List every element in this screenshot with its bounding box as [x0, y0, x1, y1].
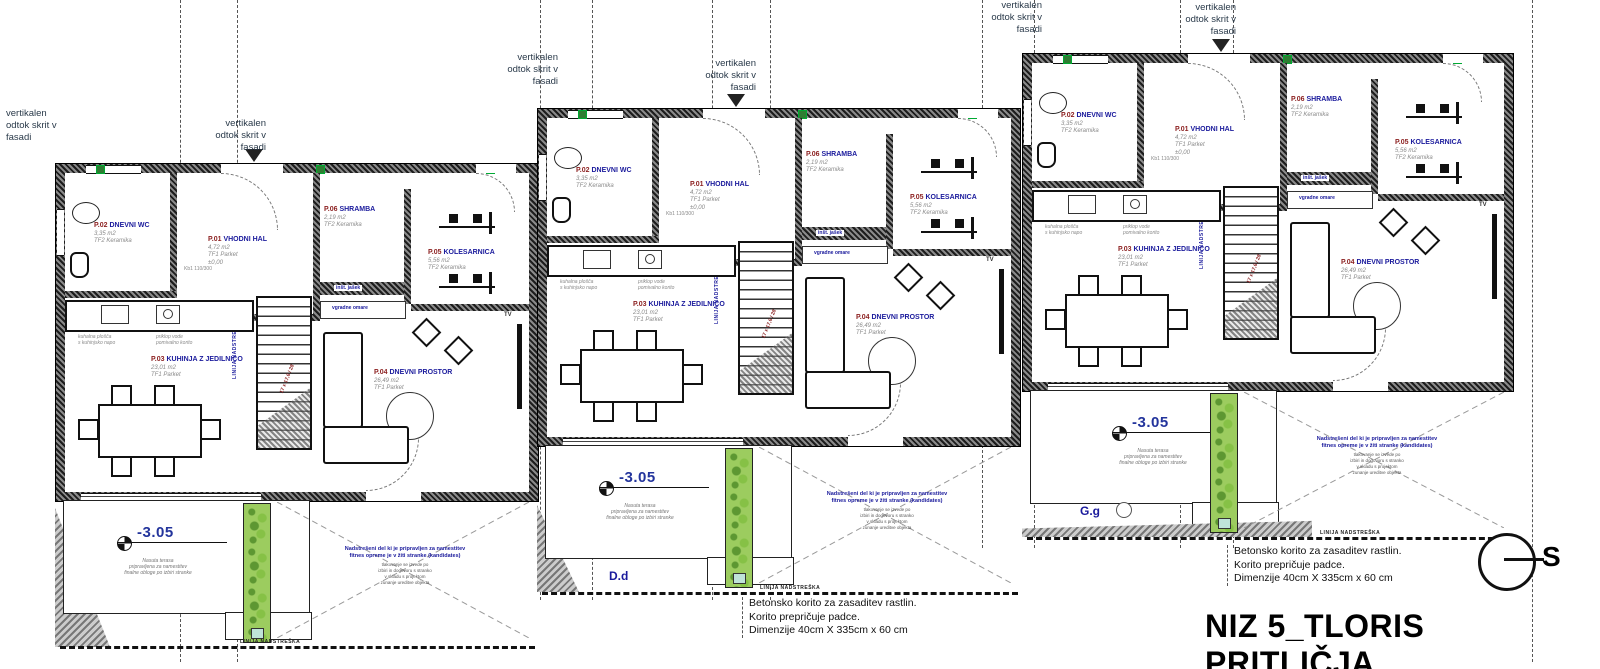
- level-marker-icon: [599, 481, 614, 496]
- room-label-kitchen: P.03 KUHINJA Z JEDILNICO 23,01 m2 TF1 Pa…: [151, 356, 243, 380]
- dining-table: [98, 404, 202, 458]
- terrace-b: -3.05 Nasuta terasa pripravljena za name…: [537, 445, 1019, 592]
- room-label-wc: P.02 DNEVNI WC 3,35 m2 TF2 Keramika: [1061, 112, 1117, 136]
- sink-note: priklop vode pomivalno korito: [156, 334, 192, 346]
- chair: [78, 419, 99, 440]
- window: [568, 110, 623, 119]
- planter-note: Betonsko korito za zasaditev rastlin. Ko…: [742, 597, 1019, 638]
- entry-door: [703, 109, 765, 118]
- staircase: 17 x 17,6 / 28: [256, 296, 312, 450]
- wardrobe-label: vgradne omare: [332, 305, 368, 311]
- unit-b: P.02 DNEVNI WC 3,35 m2 TF2 Keramika P.01…: [537, 108, 1021, 447]
- canopy-edge-line: [60, 646, 535, 649]
- drain-note: vertikalen odtok skrit v fasadi: [972, 0, 1042, 36]
- tv-icon: [1492, 214, 1497, 299]
- unit-c: P.02 DNEVNI WC 3,35 m2 TF2 Keramika P.01…: [1022, 53, 1514, 392]
- entry-arrow-icon: [1212, 39, 1230, 52]
- room-label-kitchen: P.03 KUHINJA Z JEDILNICO 23,01 m2 TF1 Pa…: [1118, 246, 1210, 270]
- level-marker-icon: [1112, 426, 1127, 441]
- planter: [1210, 393, 1238, 533]
- room-label-hall: P.01 VHODNI HAL 4,72 m2 TF1 Parket ±0,00: [208, 236, 267, 267]
- wall: [313, 173, 320, 321]
- dining-table: [1065, 294, 1169, 348]
- drain-note: vertikalen odtok skrit v fasadi: [6, 108, 76, 144]
- drain-note: vertikalen odtok skrit v fasadi: [196, 118, 266, 154]
- drain-note: vertikalen odtok skrit v fasadi: [686, 58, 756, 94]
- north-label: S: [1542, 541, 1561, 573]
- room-label-hall: P.01 VHODNI HAL 4,72 m2 TF1 Parket ±0,00: [690, 181, 749, 212]
- room-label-living: P.04 DNEVNI PROSTOR 26,49 m2 TF1 Parket: [856, 314, 934, 338]
- hob-note: kuhalna plošča s kuhinjsko napo: [78, 334, 115, 346]
- entry-door: [221, 164, 283, 173]
- room-label-wc: P.02 DNEVNI WC 3,35 m2 TF2 Keramika: [94, 222, 150, 246]
- section-label-g: G.g: [1080, 504, 1100, 518]
- entry-door: [1188, 54, 1250, 63]
- vent-icon: [96, 165, 105, 174]
- planter: [725, 448, 753, 588]
- door: [1443, 54, 1483, 63]
- window: [86, 165, 141, 174]
- chair: [154, 456, 175, 477]
- room-label-wc: P.02 DNEVNI WC 3,35 m2 TF2 Keramika: [576, 167, 632, 191]
- window: [1053, 55, 1108, 64]
- unit-a: P.02 DNEVNI WC 3,35 m2 TF2 Keramika P.01…: [55, 163, 539, 502]
- north-icon: [1478, 533, 1536, 591]
- drawing-title: NIZ 5_TLORIS PRITLIČJA: [1205, 608, 1600, 669]
- tv-icon: [999, 269, 1004, 354]
- stove-icon: [1068, 195, 1096, 214]
- room-label-hall: P.01 VHODNI HAL 4,72 m2 TF1 Parket ±0,00: [1175, 126, 1234, 157]
- entry-arrow-icon: [727, 94, 745, 107]
- tv-label: TV: [504, 312, 512, 318]
- bike-icon: [921, 157, 979, 179]
- room-label-living: P.04 DNEVNI PROSTOR 26,49 m2 TF1 Parket: [374, 369, 452, 393]
- vent-icon: [578, 110, 587, 119]
- stair-note: 17 x 17,6 / 28: [279, 364, 296, 395]
- canopy-edge-line: [542, 592, 1018, 595]
- room-label-living: P.04 DNEVNI PROSTOR 26,49 m2 TF1 Parket: [1341, 259, 1419, 283]
- toilet-icon: [552, 197, 571, 223]
- chair: [111, 456, 132, 477]
- room-label-shramba: P.06 SHRAMBA 2,19 m2 TF2 Keramika: [806, 151, 857, 175]
- planter-note: Betonsko korito za zasaditev rastlin. Ko…: [1227, 545, 1464, 586]
- canopy-edge-line: [1027, 537, 1512, 540]
- room-label-kolesarnica: P.05 KOLESARNICA 5,56 m2 TF2 Keramika: [910, 194, 977, 218]
- north-icon-line: [1504, 558, 1544, 561]
- toilet-icon: [70, 252, 89, 278]
- wall: [411, 304, 529, 311]
- chair: [154, 385, 175, 406]
- bike-icon: [439, 212, 497, 234]
- chair: [111, 385, 132, 406]
- level-marker-icon: [117, 536, 132, 551]
- shaft-label: inšt. jašek: [334, 285, 362, 291]
- drain-note: vertikalen odtok skrit v fasadi: [1166, 2, 1236, 38]
- room-label-kolesarnica: P.05 KOLESARNICA 5,56 m2 TF2 Keramika: [1395, 139, 1462, 163]
- toilet-icon: [1037, 142, 1056, 168]
- bike-icon: [439, 272, 497, 294]
- window-mark: Kb1 110/300: [184, 266, 212, 272]
- floor-plan-page: P.02 DNEVNI WC 3,35 m2 TF2 Keramika P.01…: [0, 0, 1600, 669]
- stove-icon: [583, 250, 611, 269]
- wall: [404, 189, 411, 304]
- chair: [200, 419, 221, 440]
- bike-icon: [1406, 102, 1464, 124]
- vent-icon: [1063, 55, 1072, 64]
- bike-icon: [921, 217, 979, 239]
- room-label-shramba: P.06 SHRAMBA 2,19 m2 TF2 Keramika: [1291, 96, 1342, 120]
- wall: [65, 291, 177, 298]
- tv-icon: [517, 324, 522, 409]
- bike-icon: [1406, 162, 1464, 184]
- sink-icon: [72, 202, 100, 224]
- window: [1024, 99, 1031, 146]
- section-circle-icon: [1116, 502, 1132, 518]
- terrace-a: -3.05 Nasuta terasa pripravljena za name…: [55, 500, 537, 647]
- wall: [170, 173, 177, 293]
- room-label-shramba: P.06 SHRAMBA 2,19 m2 TF2 Keramika: [324, 206, 375, 230]
- sofa: [1290, 222, 1330, 318]
- sofa: [805, 277, 845, 373]
- window: [57, 209, 64, 256]
- staircase: 17 x 17,6 / 28: [738, 241, 794, 395]
- dining-table: [580, 349, 684, 403]
- room-label-kitchen: P.03 KUHINJA Z JEDILNICO 23,01 m2 TF1 Pa…: [633, 301, 725, 325]
- level-value: -3.05: [137, 524, 174, 541]
- staircase: 17 x 17,6 / 28: [1223, 186, 1279, 340]
- terrace-c: -3.05 Nasuta terasa pripravljena za name…: [1022, 390, 1512, 537]
- sink-icon: [1039, 92, 1067, 114]
- door: [476, 164, 516, 173]
- level-note: Nasuta terasa pripravljena za namestitev…: [103, 558, 213, 576]
- sofa: [323, 332, 363, 428]
- window: [539, 154, 546, 201]
- section-label-d: D.d: [609, 569, 628, 583]
- door: [958, 109, 998, 118]
- sink-icon: [554, 147, 582, 169]
- room-label-kolesarnica: P.05 KOLESARNICA 5,56 m2 TF2 Keramika: [428, 249, 495, 273]
- drain-note: vertikalen odtok skrit v fasadi: [488, 52, 558, 88]
- planter: [243, 503, 271, 643]
- stove-icon: [101, 305, 129, 324]
